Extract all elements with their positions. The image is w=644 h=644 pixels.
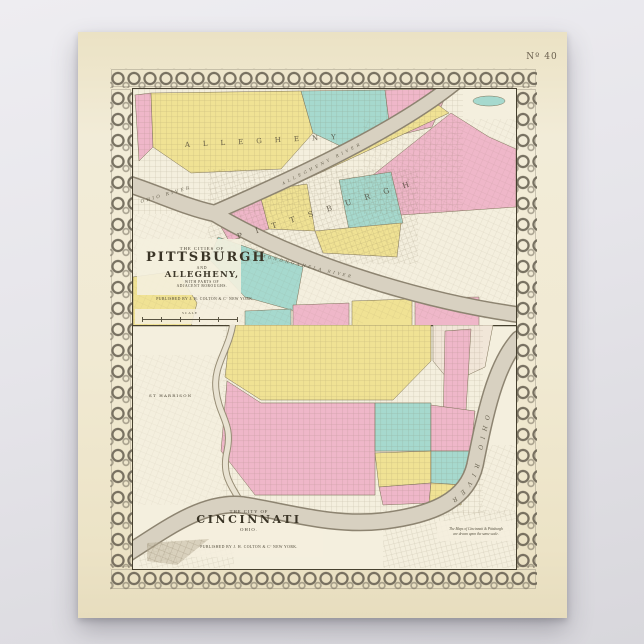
border-ornament-bottom	[110, 568, 537, 590]
map-frame: ALLEGHENY PITTSBURGH ALLEGHENY RIVER MON…	[132, 88, 517, 570]
cincinnati-publisher-line: PUBLISHED BY J. H. COLTON & Cº NEW YORK.	[168, 545, 330, 549]
scale-bar: SCALE	[142, 315, 238, 323]
pittsburgh-title-block: THE CITIES OF PITTSBURGH AND ALLEGHENY, …	[146, 246, 258, 289]
scale-label: SCALE	[142, 311, 238, 315]
pittsburgh-map-canvas: ALLEGHENY PITTSBURGH ALLEGHENY RIVER MON…	[133, 89, 516, 326]
cincinnati-title-block: THE CITY OF CINCINNATI OHIO.	[174, 509, 324, 532]
border-ornament-right	[515, 88, 537, 568]
same-scale-note-line1: The Maps of Cincinnati & Pittsburgh	[438, 527, 514, 532]
pittsburgh-title-note2: ADJACENT BOROUGHS.	[146, 284, 258, 288]
same-scale-note-line2: are drawn upon the same scale.	[438, 532, 514, 537]
map-poster: Nº 40	[78, 32, 567, 618]
scale-line	[142, 319, 238, 320]
border-ornament-top	[110, 68, 537, 88]
photo-backdrop: Nº 40	[0, 0, 644, 644]
cincinnati-title-sub: OHIO.	[174, 527, 324, 532]
same-scale-note: The Maps of Cincinnati & Pittsburgh are …	[438, 527, 514, 536]
plate-number: Nº 40	[516, 52, 568, 62]
pittsburgh-title-sub: ALLEGHENY,	[146, 271, 258, 281]
pittsburgh-publisher-line: PUBLISHED BY J. H. COLTON & Cº NEW YORK.	[142, 297, 268, 301]
pittsburgh-title-main: PITTSBURGH	[146, 251, 258, 266]
border-ornament-left	[110, 88, 132, 568]
west-district-label: ST HARRISON	[149, 393, 192, 398]
cincinnati-title-main: CINCINNATI	[174, 514, 324, 527]
